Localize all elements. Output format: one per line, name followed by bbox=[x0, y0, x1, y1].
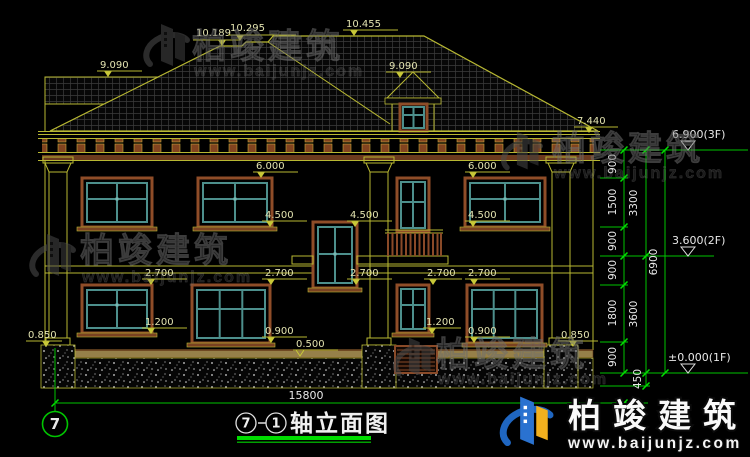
title-underline bbox=[237, 436, 371, 440]
watermark-company: 柏竣建筑 bbox=[192, 27, 344, 66]
window-1f-door-bay bbox=[392, 285, 434, 337]
dimension-label: 1.200 bbox=[145, 317, 174, 328]
watermark-url: www.baijunjz.com bbox=[553, 165, 724, 182]
watermark-company: 柏竣建筑 bbox=[552, 129, 704, 168]
brand-url: www.baijunjz.com bbox=[567, 435, 742, 452]
dimension-label: 0.850 bbox=[28, 330, 57, 341]
dimension-label: 1.200 bbox=[426, 317, 455, 328]
floor-level-label: 3.600(2F) bbox=[672, 234, 725, 247]
balcony-door bbox=[397, 178, 429, 232]
dimension-label: 4.500 bbox=[350, 210, 379, 221]
dimension-label: 900 bbox=[607, 260, 619, 280]
dimension-label: 9.090 bbox=[389, 61, 418, 72]
dimension-label: 15800 bbox=[289, 389, 324, 402]
dimension-label: 2.700 bbox=[427, 268, 456, 279]
dimension-label: 3300 bbox=[628, 190, 640, 217]
window-1f-mid bbox=[187, 285, 275, 347]
watermark-url: www.baijunjz.com bbox=[81, 269, 252, 286]
dimension-label: 0.500 bbox=[296, 339, 325, 350]
window-2f-mid bbox=[193, 178, 277, 231]
cad-viewport: 10.189 10.295 10.455 9.090 9.090 7.440 6… bbox=[0, 0, 750, 457]
dimension-label: 10.455 bbox=[346, 19, 381, 30]
dimension-label: 450 bbox=[632, 369, 644, 389]
elevation-drawing: 10.189 10.295 10.455 9.090 9.090 7.440 6… bbox=[0, 0, 750, 457]
dimension-label: 7.440 bbox=[577, 116, 606, 127]
watermark-url: www.baijunjz.com bbox=[437, 371, 608, 388]
dimension-label: 1800 bbox=[607, 300, 619, 327]
dimension-label: 6.000 bbox=[256, 161, 285, 172]
watermark-company: 柏竣建筑 bbox=[80, 231, 232, 270]
dimension-label: 2.700 bbox=[468, 268, 497, 279]
window-2f-left bbox=[77, 178, 157, 231]
title-axis-left: 7 bbox=[241, 417, 250, 432]
dimension-label: 9.090 bbox=[100, 60, 129, 71]
dimension-label: 0.900 bbox=[265, 326, 294, 337]
dimension-label: 6.000 bbox=[468, 161, 497, 172]
title-axis-right: 1 bbox=[271, 417, 280, 432]
dimension-label: 2.700 bbox=[350, 268, 379, 279]
dimension-label: 4.500 bbox=[265, 210, 294, 221]
title-text: 轴立面图 bbox=[290, 410, 390, 436]
brand-company: 柏竣建筑 bbox=[568, 397, 748, 434]
dimension-label: 4.500 bbox=[468, 210, 497, 221]
window-1f-left bbox=[77, 285, 157, 337]
watermark-company: 柏竣建筑 bbox=[436, 335, 588, 374]
watermark-url: www.baijunjz.com bbox=[193, 63, 364, 80]
floor-level-label: ±0.000(1F) bbox=[668, 351, 731, 364]
axis-number: 7 bbox=[50, 415, 60, 433]
dimension-label: 3600 bbox=[628, 301, 640, 328]
dimension-label: 6900 bbox=[648, 249, 660, 276]
dimension-label: 900 bbox=[607, 231, 619, 251]
dimension-label: 2.700 bbox=[265, 268, 294, 279]
dormer-window bbox=[400, 104, 427, 131]
dimension-label: 1500 bbox=[607, 189, 619, 216]
dimension-label: 900 bbox=[607, 347, 619, 367]
